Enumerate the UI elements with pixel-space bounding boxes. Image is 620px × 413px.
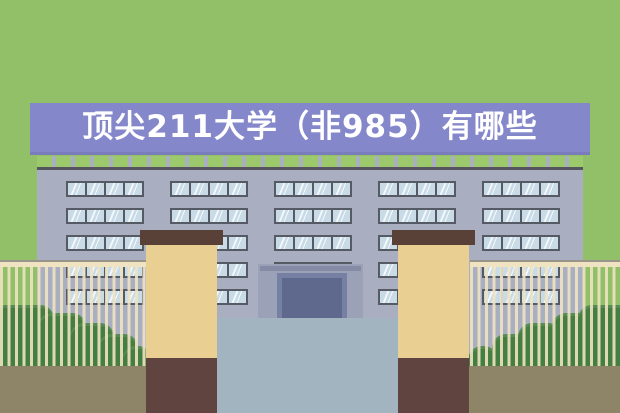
window-pane [172, 183, 189, 195]
fence-bars-left [0, 267, 146, 368]
roof-line [37, 167, 583, 170]
window-pane [380, 210, 397, 222]
window-pane [295, 210, 312, 222]
window-pane [68, 237, 85, 249]
window-pane [191, 183, 208, 195]
window-pane [484, 210, 501, 222]
window-pane [229, 183, 246, 195]
window-pane [503, 210, 520, 222]
window-pane [522, 183, 539, 195]
window-group [274, 181, 352, 197]
pillar-body [398, 245, 469, 358]
banner-title-text: 顶尖211大学（非985）有哪些 [82, 112, 537, 143]
window-pane [541, 237, 558, 249]
window-pane [380, 183, 397, 195]
window-pane [210, 183, 227, 195]
fence-rail-left [0, 260, 146, 267]
window-pane [399, 210, 416, 222]
fence-bars-right [470, 267, 620, 368]
window-group [170, 208, 248, 224]
window-group [170, 181, 248, 197]
title-banner: 顶尖211大学（非985）有哪些 [30, 103, 590, 155]
window-group [482, 235, 560, 251]
window-group [66, 235, 144, 251]
scene-background: 顶尖211大学（非985）有哪些 [0, 0, 620, 413]
window-pane [380, 264, 397, 276]
window-pane [314, 210, 331, 222]
window-pane [333, 183, 350, 195]
window-group [66, 181, 144, 197]
window-pane [295, 183, 312, 195]
window-pane [437, 183, 454, 195]
window-pane [87, 210, 104, 222]
window-pane [399, 183, 416, 195]
window-pane [522, 237, 539, 249]
courtyard-path [217, 318, 398, 413]
window-pane [418, 210, 435, 222]
window-pane [314, 237, 331, 249]
window-group [482, 208, 560, 224]
pillar-cap [392, 230, 475, 245]
window-group [378, 181, 456, 197]
window-pane [68, 183, 85, 195]
window-pane [87, 237, 104, 249]
window-pane [484, 237, 501, 249]
window-pane [333, 210, 350, 222]
pillar-base [398, 358, 469, 413]
window-pane [276, 237, 293, 249]
pillar-body [146, 245, 217, 358]
window-pane [125, 210, 142, 222]
window-pane [418, 183, 435, 195]
window-pane [68, 210, 85, 222]
window-pane [541, 183, 558, 195]
pillar-cap [140, 230, 223, 245]
window-pane [380, 291, 397, 303]
window-group [378, 208, 456, 224]
window-pane [541, 210, 558, 222]
window-pane [106, 183, 123, 195]
window-pane [210, 210, 227, 222]
window-pane [295, 237, 312, 249]
window-pane [503, 183, 520, 195]
window-pane [229, 210, 246, 222]
pillar-base [146, 358, 217, 413]
window-group [482, 181, 560, 197]
window-pane [229, 291, 246, 303]
window-pane [276, 210, 293, 222]
entrance-door [282, 278, 342, 322]
roof-hedge [37, 156, 583, 167]
window-pane [229, 264, 246, 276]
window-pane [87, 183, 104, 195]
window-pane [314, 183, 331, 195]
window-pane [106, 210, 123, 222]
window-pane [191, 210, 208, 222]
window-group [274, 235, 352, 251]
window-pane [276, 183, 293, 195]
window-pane [106, 237, 123, 249]
window-pane [437, 210, 454, 222]
window-pane [503, 237, 520, 249]
fence-rail-right [470, 260, 620, 267]
window-pane [484, 183, 501, 195]
window-group [66, 208, 144, 224]
window-pane [172, 210, 189, 222]
window-pane [333, 237, 350, 249]
window-pane [522, 210, 539, 222]
entrance-canopy-bar [260, 266, 361, 271]
window-pane [125, 183, 142, 195]
window-group [274, 208, 352, 224]
window-pane [229, 237, 246, 249]
